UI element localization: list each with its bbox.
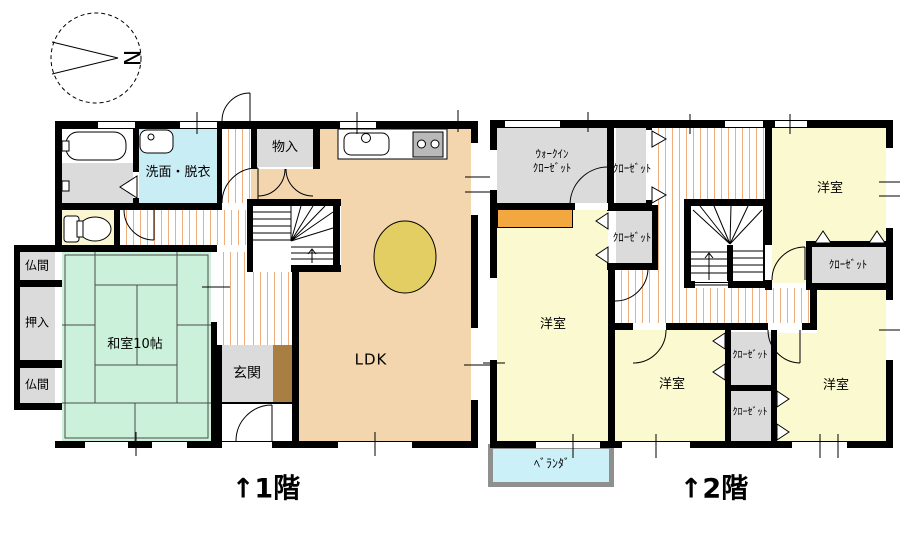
room-label-bedroom-ne: 洋室 bbox=[817, 181, 843, 197]
bathtub-icon bbox=[62, 132, 126, 191]
room-label-bedroom-w: 洋室 bbox=[540, 317, 566, 333]
room-label-closet: ｸﾛｰｾﾞｯﾄ bbox=[613, 162, 652, 176]
kitchen-counter-icon bbox=[338, 129, 447, 159]
room-label-altar2: 仏間 bbox=[25, 378, 49, 393]
dining-table-icon bbox=[374, 221, 436, 293]
stairs-1f bbox=[253, 206, 333, 263]
folding-door-icon bbox=[120, 131, 885, 440]
room-label-entrance: 玄関 bbox=[233, 365, 261, 383]
wic-line1: ｳｫｰｸｲﾝ bbox=[533, 147, 572, 161]
room-label-veranda: ﾍﾞﾗﾝﾀﾞ bbox=[534, 457, 570, 472]
room-label-altar1: 仏間 bbox=[25, 259, 49, 274]
room-label-bedroom-se: 洋室 bbox=[823, 378, 849, 394]
wic-line2: ｸﾛｰｾﾞｯﾄ bbox=[533, 161, 572, 175]
sink-icon bbox=[140, 130, 173, 153]
room-label-ldk: LDK bbox=[355, 351, 388, 370]
room-label-tatami: 和室10帖 bbox=[107, 337, 163, 353]
dimension-ticks bbox=[136, 110, 900, 458]
room-label-washroom: 洗面・脱衣 bbox=[145, 165, 210, 181]
toilet-icon bbox=[64, 216, 111, 242]
door-arc bbox=[570, 167, 805, 363]
floor2-caption: ↑2階 bbox=[680, 467, 748, 506]
room-label-closet: ｸﾛｰｾﾞｯﾄ bbox=[829, 258, 868, 272]
room-label-bedroom-s: 洋室 bbox=[659, 377, 685, 393]
floor-plan: N 洗面・脱衣 物入 仏間 押入 仏間 和室10帖 玄関 LDK ｳｫｰｸｲﾝ … bbox=[0, 0, 918, 560]
stairs-up-arrow bbox=[308, 249, 316, 263]
compass-north-letter: N bbox=[118, 50, 143, 66]
plan-linework: N bbox=[0, 0, 918, 560]
room-label-closet: ｸﾛｰｾﾞｯﾄ bbox=[733, 350, 768, 363]
stairs-2f bbox=[691, 206, 763, 285]
room-label-storage: 物入 bbox=[272, 140, 298, 156]
room-label-closet: ｸﾛｰｾﾞｯﾄ bbox=[613, 231, 652, 245]
floor1-caption: ↑1階 bbox=[232, 467, 300, 506]
room-label-wic: ｳｫｰｸｲﾝ ｸﾛｰｾﾞｯﾄ bbox=[533, 147, 572, 175]
room-label-oshiire: 押入 bbox=[25, 316, 49, 331]
room-label-closet: ｸﾛｰｾﾞｯﾄ bbox=[733, 407, 768, 420]
